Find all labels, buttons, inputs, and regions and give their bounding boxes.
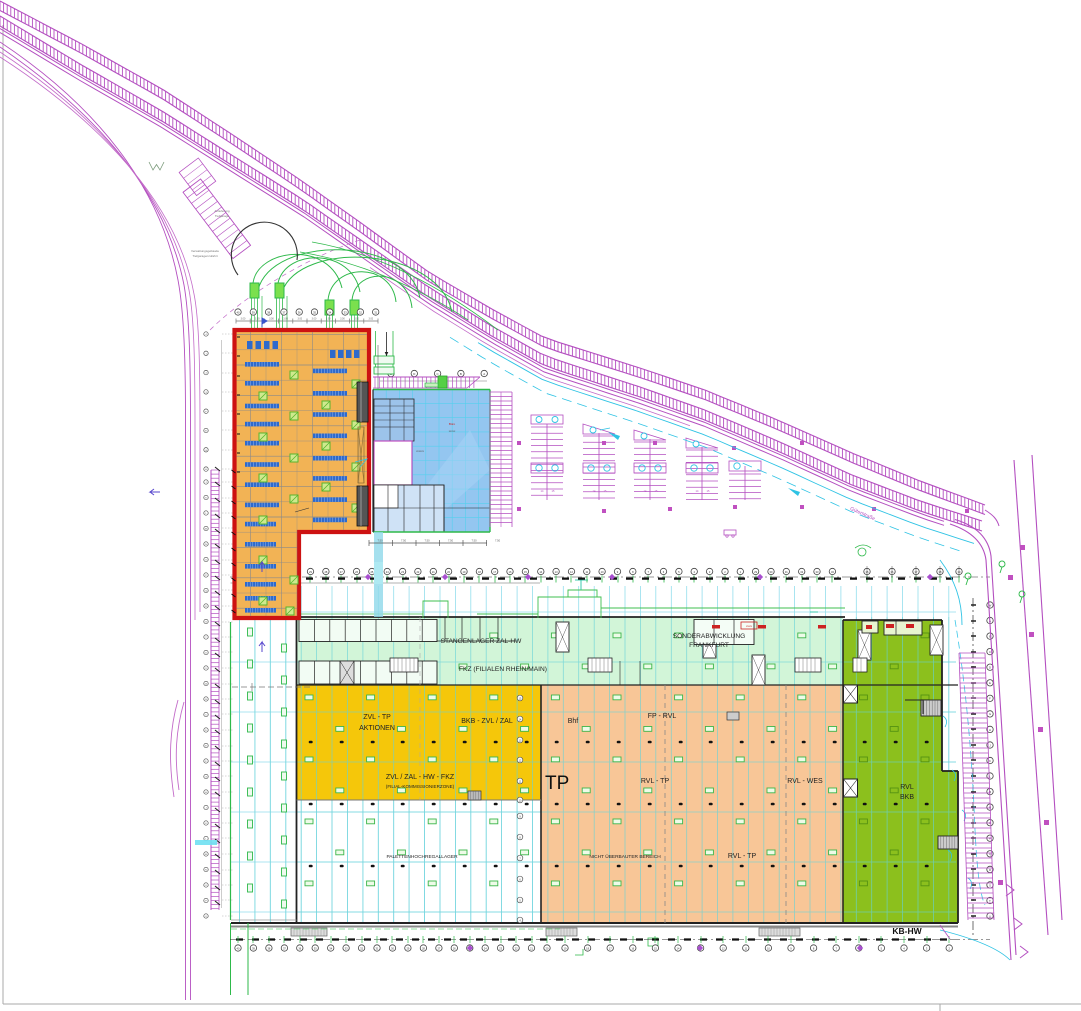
svg-text:33: 33 (344, 310, 347, 314)
svg-text:RVL - TP: RVL - TP (641, 778, 670, 785)
svg-text:RVL - TP: RVL - TP (728, 853, 757, 860)
svg-text:P: P (989, 837, 991, 841)
svg-text:RVL - WES: RVL - WES (787, 778, 823, 785)
svg-text:Büro: Büro (449, 422, 456, 426)
svg-text:7.50: 7.50 (495, 539, 501, 543)
svg-text:3.00: 3.00 (326, 318, 331, 321)
svg-text:G: G (989, 712, 991, 716)
svg-text:Anlieferung: Anlieferung (214, 209, 230, 213)
svg-text:7.50: 7.50 (448, 539, 454, 543)
svg-text:3.00: 3.00 (269, 318, 274, 321)
svg-text:S: S (989, 883, 991, 887)
svg-text:7.50: 7.50 (424, 539, 430, 543)
svg-text:7.50: 7.50 (471, 539, 477, 543)
svg-text:(FILIAL-KOMMISSIONIERZONE): (FILIAL-KOMMISSIONIERZONE) (386, 784, 455, 789)
svg-text:xxxxxx: xxxxxx (416, 450, 424, 453)
svg-text:E: E (989, 681, 991, 685)
svg-text:31: 31 (374, 310, 377, 314)
svg-text:3.00: 3.00 (312, 318, 317, 321)
svg-text:Tiefgaragenzufahrt: Tiefgaragenzufahrt (192, 254, 217, 258)
svg-text:ZVL - TP: ZVL - TP (363, 714, 391, 721)
svg-text:TP: TP (545, 773, 569, 794)
svg-text:NICHT ÜBERBAUTER BEREICH: NICHT ÜBERBAUTER BEREICH (589, 853, 661, 860)
svg-text:3.00: 3.00 (368, 318, 373, 321)
svg-text:3.00: 3.00 (340, 318, 345, 321)
svg-text:FP - RVL: FP - RVL (648, 713, 677, 720)
svg-text:R: R (989, 868, 991, 872)
svg-text:ZVL / ZAL - HW - FKZ: ZVL / ZAL - HW - FKZ (386, 774, 455, 781)
svg-text:C: C (437, 372, 439, 376)
svg-text:38: 38 (267, 310, 270, 314)
svg-text:3.00: 3.00 (283, 318, 288, 321)
svg-text:Bhf: Bhf (568, 718, 579, 725)
svg-text:H: H (989, 728, 991, 732)
svg-text:J: J (206, 482, 207, 484)
svg-text:xxxx: xxxx (746, 624, 753, 628)
svg-text:Tiefgarage: Tiefgarage (215, 214, 230, 218)
svg-text:7.50: 7.50 (401, 539, 407, 543)
svg-text:7.50: 7.50 (377, 539, 383, 543)
svg-text:D: D (989, 666, 991, 670)
svg-text:3.00: 3.00 (297, 318, 302, 321)
svg-text:D: D (413, 372, 415, 376)
svg-text:36: 36 (298, 310, 301, 314)
svg-text:K: K (989, 759, 991, 763)
svg-text:32: 32 (359, 310, 362, 314)
svg-text:AKTIONEN: AKTIONEN (359, 725, 395, 732)
svg-text:3.00: 3.00 (241, 318, 246, 321)
svg-text:BKB: BKB (900, 794, 914, 801)
svg-text:Verwaltungsgebäude: Verwaltungsgebäude (191, 249, 219, 253)
svg-text:J: J (206, 808, 207, 810)
svg-text:PALETTENHOCHREGALLAGER: PALETTENHOCHREGALLAGER (386, 854, 458, 860)
svg-text:37: 37 (282, 310, 285, 314)
svg-text:KB-HW: KB-HW (892, 926, 922, 936)
svg-text:RVL: RVL (900, 784, 914, 791)
svg-text:39: 39 (252, 310, 255, 314)
svg-text:C: C (989, 650, 991, 654)
svg-text:FRANKFURT: FRANKFURT (689, 642, 729, 649)
svg-text:B: B (460, 372, 462, 376)
svg-text:STANGENLAGER ZAL-HW: STANGENLAGER ZAL-HW (441, 638, 523, 645)
svg-text:40: 40 (237, 310, 240, 314)
svg-text:35: 35 (313, 310, 316, 314)
svg-text:SONDERABWICKLUNG: SONDERABWICKLUNG (673, 633, 746, 640)
svg-text:A: A (483, 372, 485, 376)
svg-text:3.00: 3.00 (354, 318, 359, 321)
svg-text:BKB - ZVL / ZAL: BKB - ZVL / ZAL (461, 718, 513, 725)
svg-text:FKZ (FILIALEN RHEIN/MAIN): FKZ (FILIALEN RHEIN/MAIN) (459, 666, 547, 673)
svg-text:3.00: 3.00 (255, 318, 260, 321)
svg-text:34: 34 (328, 310, 331, 314)
svg-text:xxxxx: xxxxx (449, 430, 456, 433)
